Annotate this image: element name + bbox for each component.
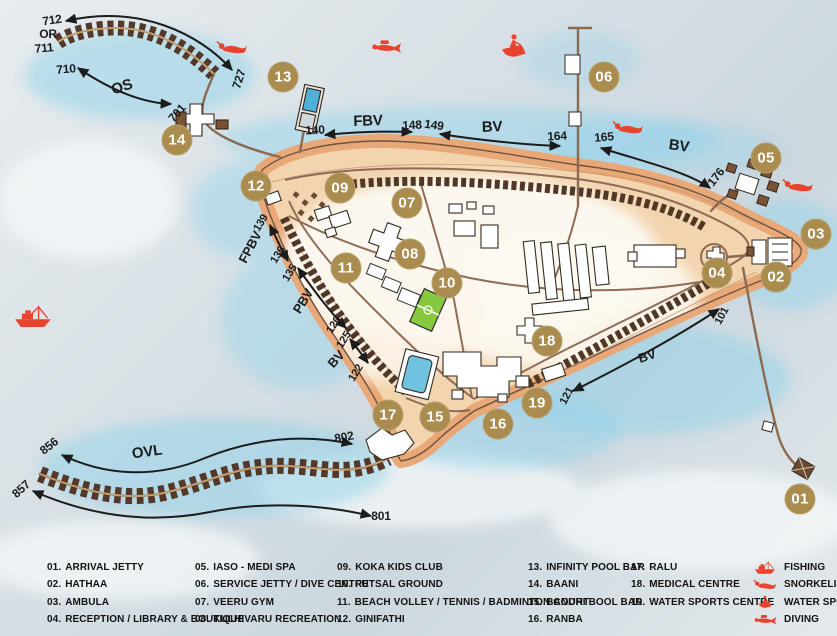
location-badge-17[interactable]: 17 [373,400,404,431]
route-label-711-2: 711 [34,40,54,56]
route-label-802-30: 802 [333,428,355,445]
route-label-135-19: 135 [280,262,300,283]
location-badge-13[interactable]: 13 [268,62,299,93]
snorkeling-icon [612,120,644,136]
route-label-727-6: 727 [229,68,248,91]
legend-activity-water-sports: WATER SPORTS [753,594,837,611]
route-label-164-12: 164 [547,129,567,144]
location-badge-11[interactable]: 11 [331,253,362,284]
resort-island-map: 0102030405060708091011121314151617181971… [0,0,837,636]
diving-icon [753,613,777,627]
route-label-136-18: 136 [268,244,288,265]
route-label-140-7: 140 [305,123,325,138]
snorkeling-icon [753,578,777,592]
location-badge-03[interactable]: 03 [801,219,832,250]
map-overlay: 0102030405060708091011121314151617181971… [0,0,837,636]
location-badge-18[interactable]: 18 [532,326,563,357]
route-label-or-1: OR [39,27,57,41]
route-label-149-10: 149 [423,117,444,134]
fishing-icon [14,304,52,330]
route-label-pbv-20: PBV [290,286,317,316]
route-label-fpbv-17: FPBV [235,229,264,266]
route-label-101-27: 101 [713,305,732,326]
route-label-857-31: 857 [9,477,33,500]
location-badge-06[interactable]: 06 [589,62,620,93]
snorkeling-icon [782,178,814,194]
legend-item-14: 14.BAANI [528,576,645,593]
water-sports-icon [753,595,777,609]
location-badge-16[interactable]: 16 [483,409,514,440]
route-label-os-4: OS [109,76,134,99]
legend-activities: FISHINGSNORKELINGWATER SPORTSDIVING [753,559,837,628]
location-badge-19[interactable]: 19 [522,388,553,419]
location-badge-15[interactable]: 15 [420,402,451,433]
location-badge-10[interactable]: 10 [432,268,463,299]
legend-activity-snorkeling: SNORKELING [753,576,837,593]
snorkeling-icon [216,40,248,56]
legend-item-13: 13.INFINITY POOL BAR [528,559,645,576]
location-badge-12[interactable]: 12 [241,171,272,202]
route-label-701-5: 701 [165,101,188,125]
diving-icon [370,38,402,56]
route-label-122-24: 122 [346,362,366,383]
legend-item-16: 16.RANBA [528,611,645,628]
legend-column-4: 13.INFINITY POOL BAR14.BAANI15.BANDHI BO… [528,559,645,628]
location-badge-02[interactable]: 02 [761,262,792,293]
location-badge-09[interactable]: 09 [325,173,356,204]
location-badge-01[interactable]: 01 [785,484,816,515]
route-label-856-28: 856 [37,435,61,458]
route-label-710-3: 710 [56,61,77,77]
route-label-712-0: 712 [41,12,62,29]
legend-activity-fishing: FISHING [753,559,837,576]
route-label-ovl-29: OVL [131,441,163,462]
legend: 01.ARRIVAL JETTY02.HATHAA03.AMBULA04.REC… [0,556,837,636]
route-label-bv-14: BV [668,136,691,156]
water-sports-icon [500,33,528,59]
route-label-121-25: 121 [558,385,577,406]
location-badge-08[interactable]: 08 [395,239,426,270]
location-badge-14[interactable]: 14 [162,125,193,156]
route-label-bv-26: BV [636,346,657,366]
fishing-icon [753,561,777,575]
location-badge-07[interactable]: 07 [392,188,423,219]
route-label-176-15: 176 [705,165,728,189]
route-label-148-9: 148 [402,118,422,133]
route-label-801-32: 801 [371,509,390,523]
location-badge-05[interactable]: 05 [751,143,782,174]
route-label-fbv-8: FBV [353,112,383,130]
location-badge-04[interactable]: 04 [702,258,733,289]
route-label-bv-11: BV [481,118,502,136]
legend-activity-diving: DIVING [753,611,837,628]
legend-item-15: 15.BANDHI BOOL BAR [528,594,645,611]
